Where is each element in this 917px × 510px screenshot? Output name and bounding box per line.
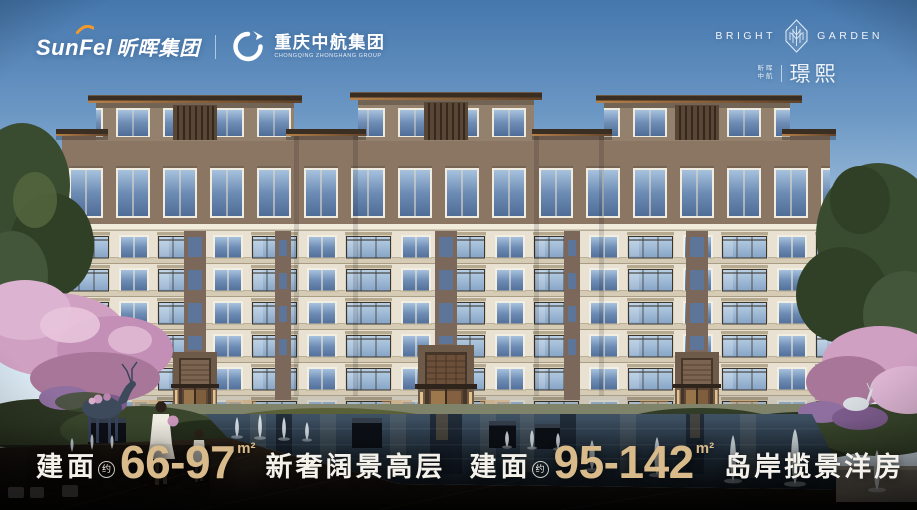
subbrand-line2: 中航 [757,73,774,81]
sunfel-swoosh-icon [76,25,94,34]
tagline2-area-range: 95-142 [554,444,694,481]
project-name: 璟熙 [789,58,839,88]
caic-swirl-icon [231,30,265,63]
tagline1-approx-badge: 约 [98,461,115,478]
caic-name-cn: 重庆中航集团 [274,34,385,51]
project-logo: BRIGHT GARDEN 昕晖 中航 璟熙 [712,19,883,88]
project-name-row: 昕晖 中航 璟熙 [755,58,839,88]
sunfel-logo: SunFel 昕晖集团 [36,32,200,61]
subbrand-line1: 昕晖 [757,65,774,73]
tagline2-description: 岛岸揽景洋房 [724,454,904,481]
brand-word-left: BRIGHT [715,30,776,42]
logo-divider [215,35,216,59]
tagline1-description: 新奢阔景高层 [266,454,446,481]
garden-emblem-icon [785,19,808,53]
brand-word-right: GARDEN [817,30,883,42]
poster: SunFel 昕晖集团 重庆中航集团 CHONGQING ZHONGHANG G… [0,0,917,510]
developer-brands: SunFel 昕晖集团 重庆中航集团 CHONGQING ZHONGHANG G… [36,30,385,63]
name-divider [781,65,782,82]
tagline1-area-range: 66-97 [120,444,235,481]
tagline2-prefix: 建面 [470,454,532,481]
tagline-highrise: 建面 约 66-97 m² 新奢阔景高层 [36,444,446,481]
tagline1-unit: m² [237,441,255,456]
tagline1-prefix: 建面 [36,454,98,481]
tagline2-approx-badge: 约 [532,461,549,478]
tagline-flats: 建面 约 95-142 m² 岛岸揽景洋房 [470,444,905,481]
caic-name-en: CHONGQING ZHONGHANG GROUP [274,54,385,60]
sunfel-name-cn: 昕晖集团 [116,32,200,61]
taglines: 建面 约 66-97 m² 新奢阔景高层 建面 约 95-142 m² 岛岸揽景… [36,444,904,481]
caic-logo: 重庆中航集团 CHONGQING ZHONGHANG GROUP [231,30,385,63]
caic-text: 重庆中航集团 CHONGQING ZHONGHANG GROUP [274,34,385,60]
subbrand-stack: 昕晖 中航 [755,65,774,82]
project-brand-row: BRIGHT GARDEN [712,19,883,53]
tagline2-unit: m² [696,441,714,456]
sunfel-wordmark: SunFel [36,35,112,61]
